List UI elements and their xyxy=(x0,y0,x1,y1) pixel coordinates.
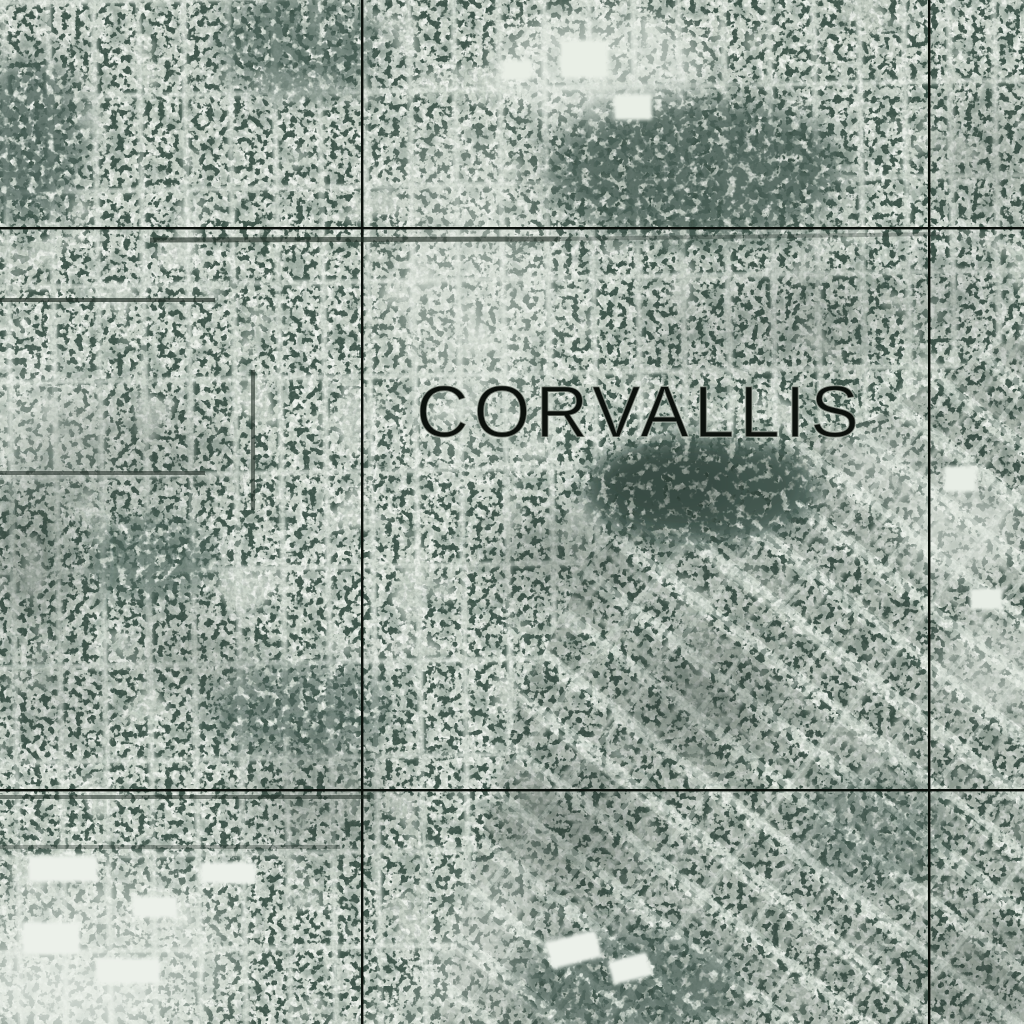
svg-text:CORVALLIS: CORVALLIS xyxy=(416,372,864,453)
